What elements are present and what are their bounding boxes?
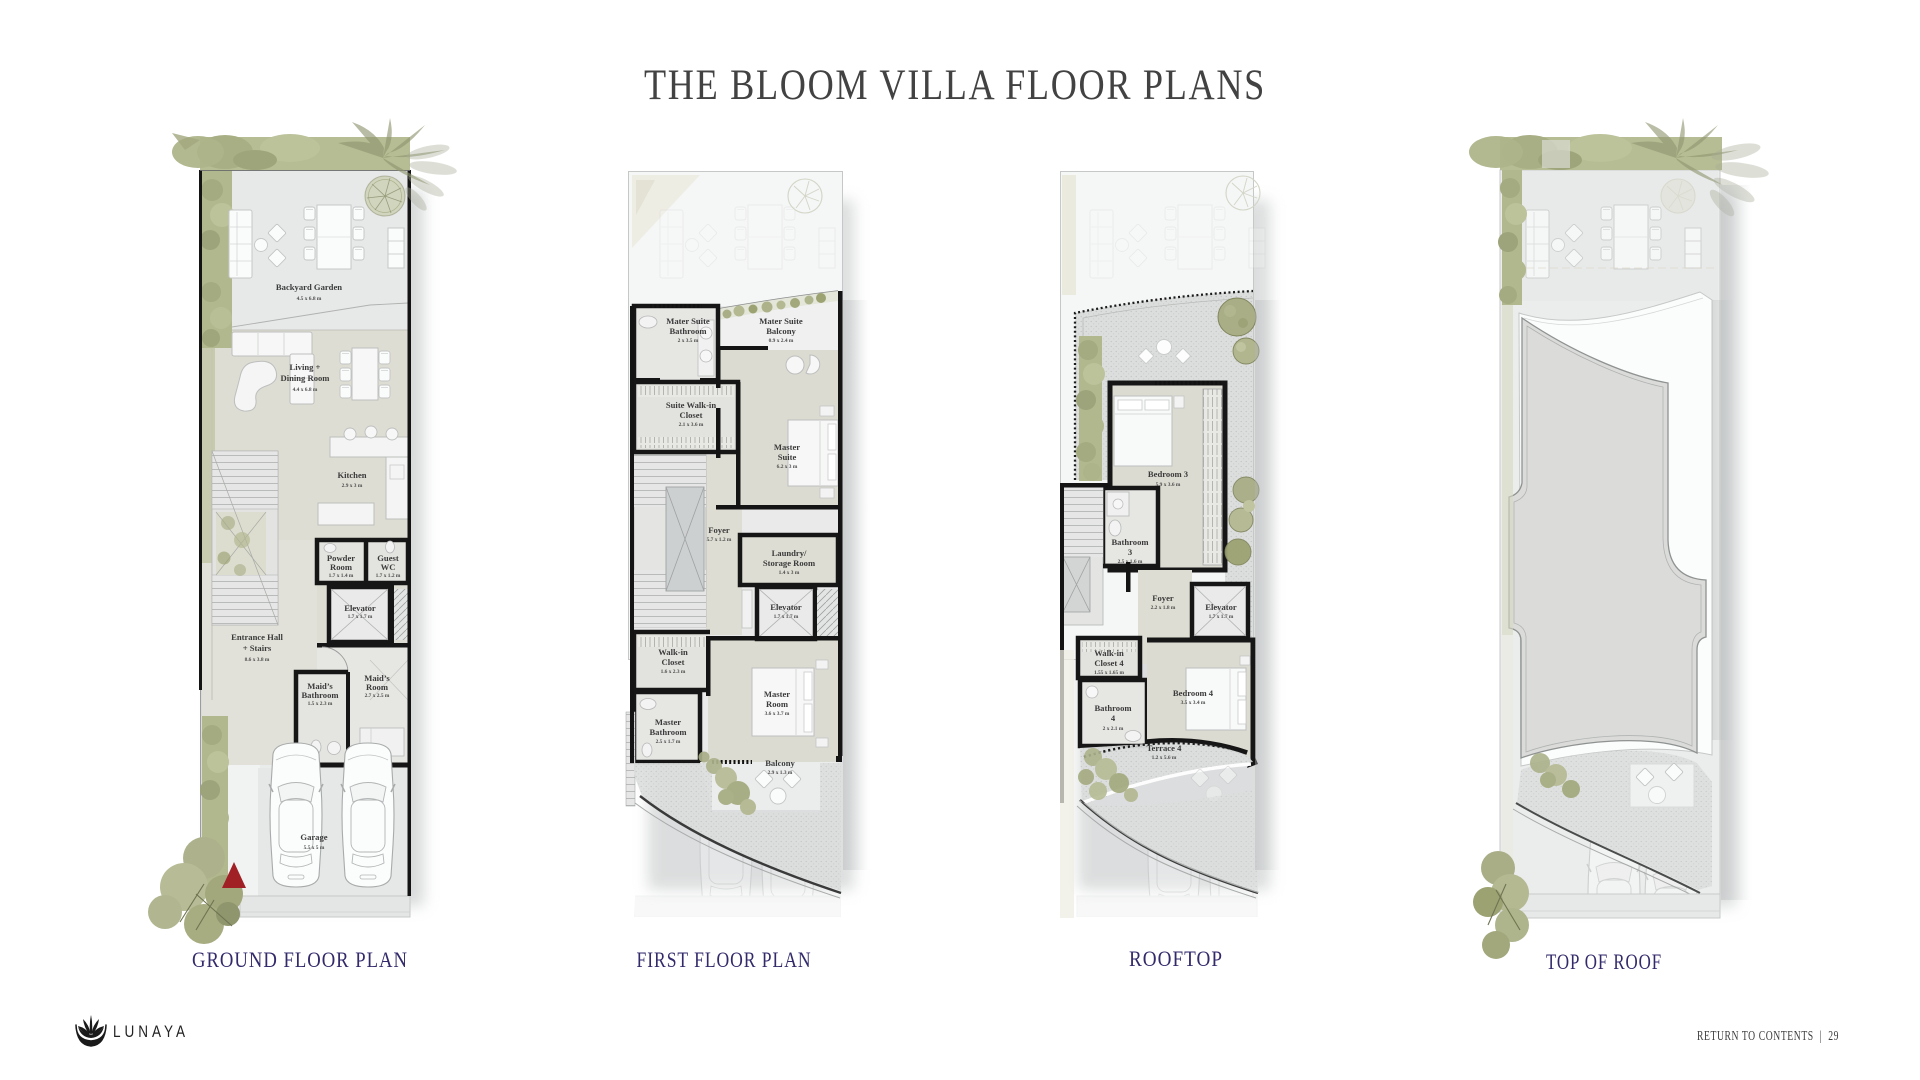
svg-text:2.7 x 2.5 m: 2.7 x 2.5 m (365, 693, 390, 699)
svg-text:Bathroom: Bathroom (649, 727, 687, 737)
svg-text:6.2 x 3 m: 6.2 x 3 m (777, 464, 798, 470)
svg-text:Mater Suite: Mater Suite (759, 316, 803, 326)
svg-text:4.5 x 6.8 m: 4.5 x 6.8 m (297, 296, 322, 302)
svg-text:RETURN TO CONTENTS | 29: RETURN TO CONTENTS | 29 (1697, 1028, 1839, 1043)
svg-text:Entrance Hall: Entrance Hall (231, 632, 283, 642)
svg-text:Terrace 4: Terrace 4 (1147, 743, 1182, 753)
svg-text:Storage Room: Storage Room (763, 558, 816, 568)
svg-text:Closet: Closet (680, 410, 703, 420)
svg-text:WC: WC (381, 562, 396, 572)
svg-text:Balcony: Balcony (766, 326, 796, 336)
svg-text:Bedroom 4: Bedroom 4 (1173, 688, 1214, 698)
svg-text:Dining Room: Dining Room (281, 373, 331, 383)
svg-text:Closet 4: Closet 4 (1094, 658, 1124, 668)
svg-text:Bathroom: Bathroom (301, 690, 339, 700)
svg-text:2.2 x 1.8 m: 2.2 x 1.8 m (1151, 605, 1176, 611)
svg-text:1.7 x 1.7 m: 1.7 x 1.7 m (348, 614, 373, 620)
svg-text:Backyard Garden: Backyard Garden (276, 282, 342, 292)
svg-text:Room: Room (766, 699, 789, 709)
svg-text:1.2 x 5.6 m: 1.2 x 5.6 m (1152, 755, 1177, 761)
svg-text:1.7 x 1.7 m: 1.7 x 1.7 m (774, 614, 799, 620)
svg-text:5.5 x 5 m: 5.5 x 5 m (304, 845, 325, 851)
svg-text:1.6 x 2.3 m: 1.6 x 2.3 m (661, 669, 686, 675)
svg-text:Laundry/: Laundry/ (772, 548, 807, 558)
svg-text:Garage: Garage (300, 832, 327, 842)
svg-text:1.7 x 1.7 m: 1.7 x 1.7 m (1209, 614, 1234, 620)
svg-text:1.7 x 1.4 m: 1.7 x 1.4 m (329, 573, 354, 579)
svg-text:1.5 x 2.3 m: 1.5 x 2.3 m (308, 701, 333, 707)
svg-text:Kitchen: Kitchen (337, 470, 366, 480)
svg-text:Bedroom 3: Bedroom 3 (1148, 469, 1188, 479)
svg-text:1.4 x 3 m: 1.4 x 3 m (779, 570, 800, 576)
svg-text:Walk-in: Walk-in (658, 647, 688, 657)
svg-text:Foyer: Foyer (1152, 593, 1174, 603)
svg-text:2.9 x 3 m: 2.9 x 3 m (342, 483, 363, 489)
svg-text:Bathroom: Bathroom (1111, 537, 1149, 547)
svg-text:LUNAYA: LUNAYA (113, 1022, 189, 1041)
svg-text:1.55 x 1.65 m: 1.55 x 1.65 m (1094, 670, 1125, 676)
svg-text:Walk-in: Walk-in (1094, 648, 1124, 658)
svg-text:2.1 x 3.6 m: 2.1 x 3.6 m (679, 422, 704, 428)
svg-text:Elevator: Elevator (1205, 602, 1237, 612)
svg-text:4: 4 (1111, 713, 1116, 723)
svg-text:Room: Room (330, 562, 353, 572)
svg-text:2.5 x 1.7 m: 2.5 x 1.7 m (656, 739, 681, 745)
svg-text:Bathroom: Bathroom (669, 326, 707, 336)
svg-text:Master: Master (764, 689, 790, 699)
svg-text:Closet: Closet (662, 657, 685, 667)
svg-text:Mater Suite: Mater Suite (666, 316, 710, 326)
svg-text:Elevator: Elevator (770, 602, 802, 612)
svg-text:4.4 x 6.8 m: 4.4 x 6.8 m (293, 387, 318, 393)
svg-text:Foyer: Foyer (708, 525, 730, 535)
svg-text:1.7 x 1.2 m: 1.7 x 1.2 m (376, 573, 401, 579)
svg-text:Living +: Living + (290, 362, 321, 372)
svg-text:+ Stairs: + Stairs (243, 643, 272, 653)
svg-text:Bathroom: Bathroom (1094, 703, 1132, 713)
svg-text:Suite Walk-in: Suite Walk-in (666, 400, 716, 410)
svg-text:8.6 x 3.8 m: 8.6 x 3.8 m (245, 657, 270, 663)
svg-text:FIRST FLOOR PLAN: FIRST FLOOR PLAN (637, 947, 812, 972)
svg-text:Master: Master (774, 442, 800, 452)
svg-text:Master: Master (655, 717, 681, 727)
svg-text:Suite: Suite (778, 452, 797, 462)
svg-text:3.5 x 3.4 m: 3.5 x 3.4 m (1181, 700, 1206, 706)
svg-text:2.9 x 1.3 m: 2.9 x 1.3 m (768, 770, 793, 776)
svg-text:3: 3 (1128, 547, 1132, 557)
svg-text:ROOFTOP: ROOFTOP (1129, 946, 1223, 971)
svg-text:5.7 x 1.2 m: 5.7 x 1.2 m (707, 537, 732, 543)
svg-text:GROUND FLOOR PLAN: GROUND FLOOR PLAN (192, 947, 408, 972)
svg-text:Elevator: Elevator (344, 603, 376, 613)
svg-text:THE BLOOM VILLA FLOOR PLANS: THE BLOOM VILLA FLOOR PLANS (644, 62, 1266, 109)
svg-text:Room: Room (366, 682, 389, 692)
svg-text:Balcony: Balcony (765, 758, 795, 768)
svg-text:2 x 3.5 m: 2 x 3.5 m (678, 338, 699, 344)
svg-text:TOP OF ROOF: TOP OF ROOF (1546, 949, 1662, 974)
svg-text:2 x 2.1 m: 2 x 2.1 m (1103, 726, 1124, 732)
svg-text:3.6 x 3.7 m: 3.6 x 3.7 m (765, 711, 790, 717)
svg-text:0.9 x 2.4 m: 0.9 x 2.4 m (769, 338, 794, 344)
